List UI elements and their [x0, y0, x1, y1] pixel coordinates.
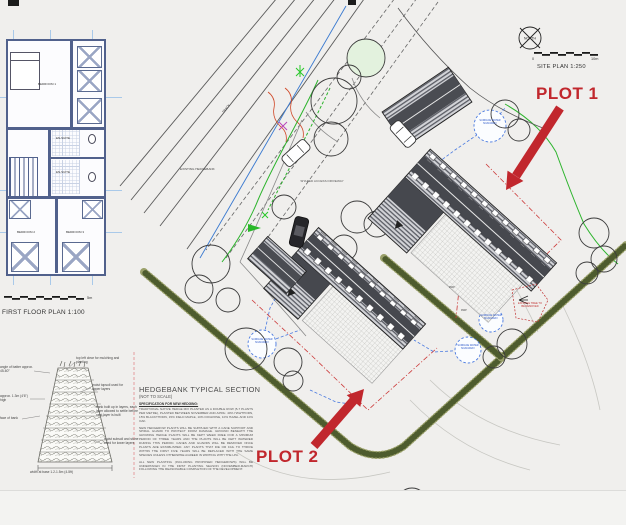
sheet-edge-mark-2: [348, 0, 356, 5]
architect-drawing-sheet: NORTH: [0, 0, 626, 525]
hedgebank-subtitle: (NOT TO SCALE): [139, 394, 172, 399]
room-label-bedroom2: BEDROOM 2: [17, 230, 35, 234]
hb-ann-topsoil: moist topsoil used for upper layers: [92, 384, 130, 392]
siteplan-title: SITE PLAN 1:250: [537, 64, 586, 70]
ensuite-floor-tiles-2: [52, 160, 80, 194]
hedgebank-note: EXISTING HEDGEBANK: [180, 168, 218, 172]
floorplan-scale-bar: [4, 296, 84, 300]
sheet-edge-mark: [8, 0, 19, 6]
soakaway-label-4: SURFACE WATER SOAKAWAY: [251, 339, 273, 345]
spec-paragraph-1: TRADITIONAL NATIVE HEDGE MIX PLANTED AS …: [139, 408, 253, 424]
hb-ann-layers: bank built up in layers, each layer allo…: [96, 406, 138, 418]
hedgebank-title: HEDGEBANK TYPICAL SECTION: [139, 385, 260, 394]
hb-ann-face: face of bank: [0, 417, 24, 421]
track-road-lines: [120, 0, 369, 249]
room-label-bedroom1: BEDROOM 1: [38, 82, 56, 86]
wardrobe-box: [77, 98, 102, 124]
hedgebank-spec-heading: SPECIFICATION FOR NEW HEDGING:: [139, 402, 198, 406]
car-shape-white-1: [281, 138, 312, 168]
hb-ann-base: width at base 1.2-1.5m (4-5ft): [30, 471, 120, 475]
rwp-label-2: RWP: [461, 309, 467, 312]
bed-hatch: [62, 242, 90, 272]
internal-wall: [70, 41, 73, 128]
floorplan-title: FIRST FLOOR PLAN 1:100: [2, 309, 85, 316]
soakaway-label-2: SURFACE WATER SOAKAWAY: [480, 315, 502, 321]
internal-wall: [48, 127, 51, 197]
soakaway-label-1: SURFACE WATER SOAKAWAY: [477, 120, 503, 126]
toilet-fixture: [88, 134, 96, 144]
service-crossing-squiggles: [268, 88, 303, 142]
rwp-label-1: RWP: [449, 286, 455, 289]
green-flow-arrow: [248, 224, 261, 232]
spec-paragraph-3: ALL NEW PLANTING (INCLUDING PROPOSED HED…: [139, 461, 253, 473]
hb-ann-batter: angle of batter approx. 45-60°: [0, 366, 34, 374]
siteplan-scale-end: 10m: [591, 57, 598, 61]
internal-wall: [55, 196, 58, 273]
hb-ann-top: top left clear for mulching and planting: [76, 357, 122, 365]
tree-removed-note: EXISTING TREE TO BE REMOVED: [516, 303, 544, 309]
siteplan-scale-bar: [534, 52, 598, 56]
north-label: NORTH: [524, 37, 537, 41]
bed-shape: [10, 52, 40, 90]
plot2-label: PLOT 2: [256, 447, 319, 467]
north-arrow-icon: NORTH: [519, 27, 541, 49]
wardrobe-box: [77, 46, 102, 68]
wardrobe-box: [82, 200, 103, 219]
soakaway-label-3: SURFACE WATER SOAKAWAY: [457, 345, 479, 351]
internal-wall: [50, 157, 105, 159]
toilet-fixture-2: [88, 172, 96, 182]
hb-ann-height: approx. 1.3m (4'6") high: [0, 395, 30, 403]
spec-paragraph-2: NEW HEDGEROW PLANTS WILL BE SUPPLIED WIT…: [139, 427, 253, 458]
hedgebank-spec-text: TRADITIONAL NATIVE HEDGE MIX PLANTED AS …: [139, 408, 253, 475]
plot1-label: PLOT 1: [536, 84, 599, 104]
ensuite-floor-tiles: [52, 130, 80, 156]
hb-ann-subsoil: moist subsoil and stone used for lower l…: [104, 438, 142, 446]
bed-hatch: [11, 242, 39, 272]
room-label-ensuite2: EN-SUITE: [56, 170, 70, 174]
floorplan-scale-label: 5m: [87, 296, 92, 300]
sheet-bottom-margin: [0, 490, 626, 525]
room-label-bedroom3: BEDROOM 3: [66, 230, 84, 234]
stairs: [9, 157, 38, 197]
wardrobe-box: [77, 70, 102, 92]
wardrobe-box: [9, 200, 31, 219]
plot2-house-roof: [264, 228, 426, 385]
room-label-ensuite1: EN-SUITE: [56, 136, 70, 140]
siteplan-scale-zero: 0: [532, 57, 534, 61]
driveway-label: SHARED ACCESS DRIVEWAY: [300, 180, 344, 184]
